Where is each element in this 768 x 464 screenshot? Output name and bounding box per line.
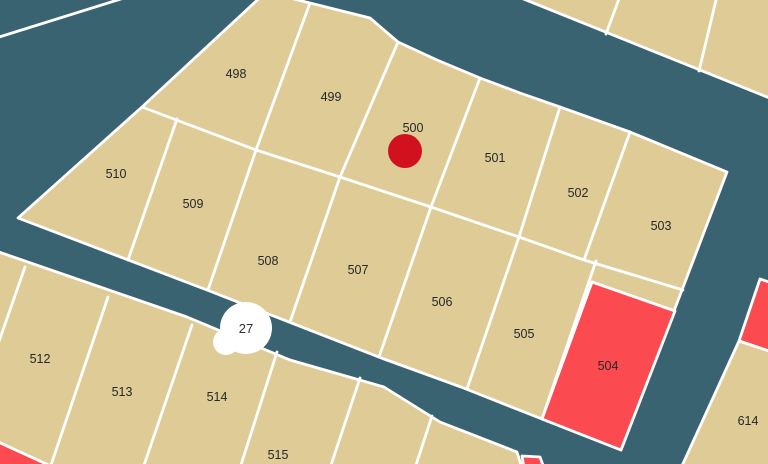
- cluster-count-label: 27: [239, 321, 253, 336]
- parcel-label-504: 504: [598, 359, 619, 373]
- parcel-label-507: 507: [348, 263, 369, 277]
- parcel-label-501: 501: [485, 151, 506, 165]
- parcel-label-614: 614: [738, 414, 759, 428]
- map-pin-marker[interactable]: [388, 134, 422, 168]
- parcel-label-510: 510: [106, 167, 127, 181]
- parcel-label-514: 514: [207, 390, 228, 404]
- map-canvas[interactable]: 498 499 500 501 502 503 504 505 506 507 …: [0, 0, 768, 464]
- parcel-label-515: 515: [268, 448, 289, 462]
- map-viewport[interactable]: 498 499 500 501 502 503 504 505 506 507 …: [0, 0, 768, 464]
- parcel-highlight-south-shape[interactable]: [522, 456, 544, 464]
- parcel-label-502: 502: [568, 186, 589, 200]
- parcel-label-506: 506: [432, 295, 453, 309]
- parcel-label-505: 505: [514, 327, 535, 341]
- parcel-label-503: 503: [651, 219, 672, 233]
- parcel-label-509: 509: [183, 197, 204, 211]
- parcel-label-498: 498: [226, 67, 247, 81]
- parcel-label-512: 512: [30, 352, 51, 366]
- parcel-label-508: 508: [258, 254, 279, 268]
- parcel-label-513: 513: [112, 385, 133, 399]
- parcel-label-500: 500: [403, 121, 424, 135]
- parcel-label-499: 499: [321, 90, 342, 104]
